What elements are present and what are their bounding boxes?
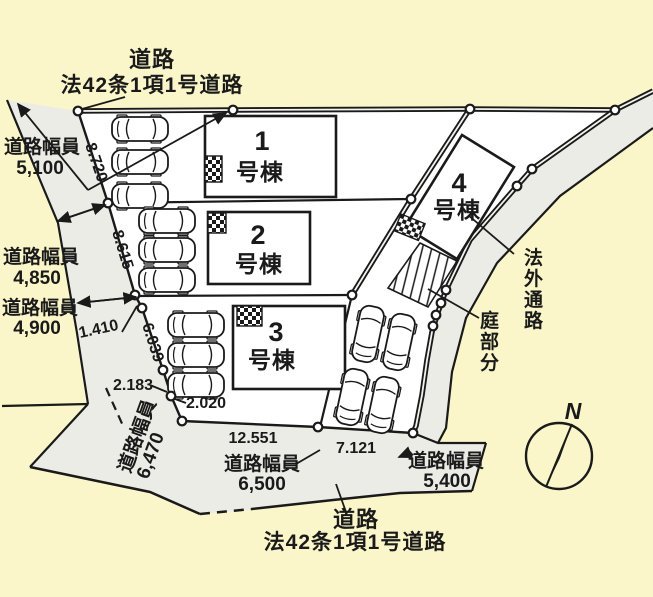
width-6500-value: 6,500 (238, 474, 286, 495)
width-4900-label: 道路幅員 (2, 296, 78, 319)
width-4850-label: 道路幅員 (3, 245, 79, 268)
boundary-marker (348, 291, 357, 300)
boundary-marker (407, 195, 416, 204)
boundary-marker (314, 423, 323, 432)
car-icon (168, 341, 224, 369)
building-3-suffix: 号棟 (248, 347, 296, 373)
car-icon (139, 207, 195, 235)
car-icon (139, 236, 195, 264)
building-2: 2 号棟 (208, 212, 310, 284)
building-2-suffix: 号棟 (235, 251, 283, 277)
width-5100-label: 道路幅員 (4, 135, 80, 158)
boundary-marker (74, 107, 83, 116)
width-4900-value: 4,900 (13, 318, 61, 339)
boundary-marker (159, 366, 168, 375)
dimension-7121: 7.121 (336, 440, 376, 457)
dimension-2183: 2.183 (113, 377, 153, 394)
width-5400-value: 5,400 (423, 471, 471, 492)
car-icon (139, 266, 195, 294)
building-2-number: 2 (250, 220, 265, 250)
boundary-marker (437, 299, 446, 308)
top-road-name: 道路 (129, 47, 175, 72)
building-3-number: 3 (268, 317, 283, 347)
boundary-marker (178, 417, 187, 426)
site-plan-drawing: 1 号棟 2 号棟 3 号棟 4 号棟 (0, 0, 653, 597)
boundary-marker (138, 304, 147, 313)
bottom-road-type: 法42条1項1号道路 (264, 530, 447, 554)
building-1-suffix: 号棟 (236, 159, 284, 185)
porch-3 (237, 306, 262, 326)
width-4850-value: 4,850 (13, 268, 61, 289)
building-1: 1 号棟 (205, 116, 336, 197)
width-5100-value: 5,100 (16, 158, 64, 179)
boundary-marker (528, 165, 537, 174)
porch-2 (208, 213, 226, 233)
dimension-2020: 2.020 (186, 395, 226, 412)
width-6500-label: 道路幅員 (224, 452, 300, 475)
boundary-marker (513, 182, 522, 191)
boundary-marker (104, 199, 113, 208)
boundary-marker (611, 106, 620, 115)
car-icon (168, 311, 224, 339)
car-icon (112, 115, 168, 143)
width-5400-label: 道路幅員 (408, 449, 484, 472)
car-icon (112, 182, 168, 210)
site-plan: 1 号棟 2 号棟 3 号棟 4 号棟 (0, 0, 653, 597)
north-label: N (565, 398, 582, 424)
boundary-marker (167, 392, 176, 401)
dimension-12551: 12.551 (229, 430, 278, 447)
boundary-marker (466, 105, 475, 114)
boundary-marker (442, 286, 451, 295)
boundary-marker (432, 311, 441, 320)
boundary-marker (429, 322, 438, 331)
top-road-type: 法42条1項1号道路 (61, 73, 244, 97)
boundary-marker (409, 429, 418, 438)
building-3: 3 号棟 (233, 306, 345, 389)
bottom-road-name: 道路 (333, 507, 379, 532)
building-1-number: 1 (254, 126, 269, 156)
boundary-marker (229, 106, 238, 115)
garden-label: 庭部分 (480, 309, 499, 374)
side-path-label: 法外通路 (524, 246, 544, 332)
porch-1 (205, 156, 222, 182)
building-4-number: 4 (451, 168, 466, 198)
